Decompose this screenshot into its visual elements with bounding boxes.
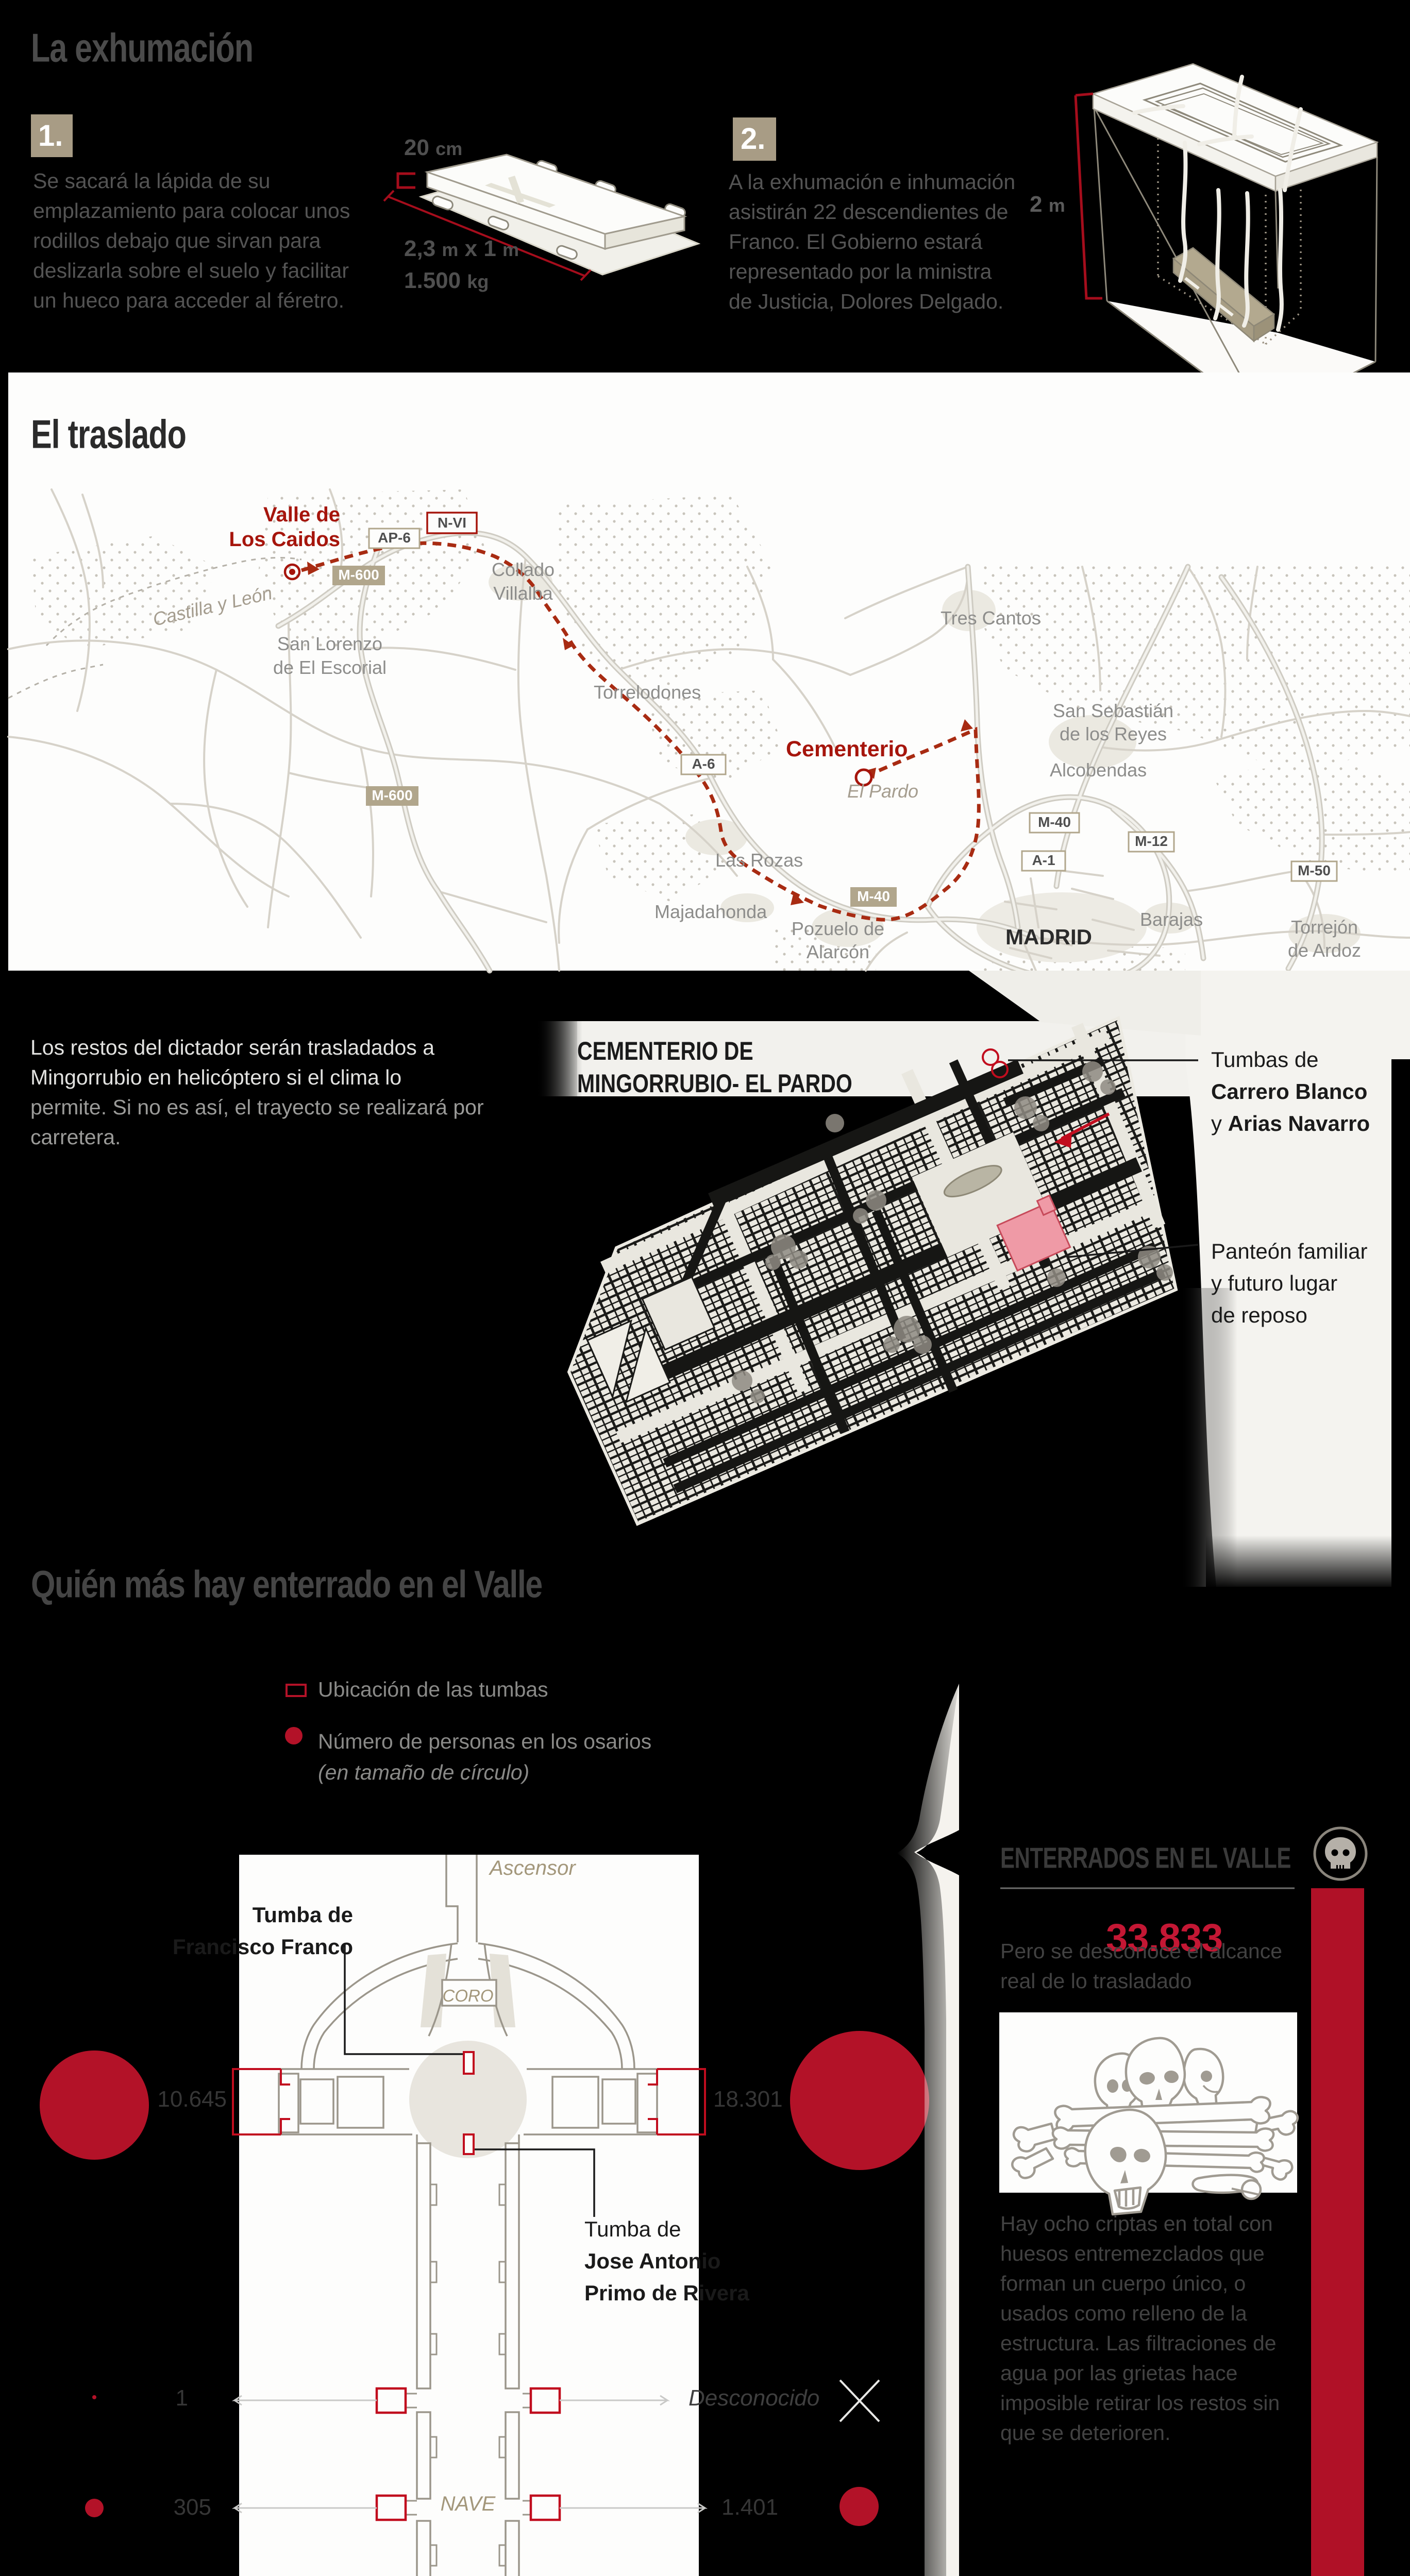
svg-text:M-40: M-40 [1038,814,1071,830]
svg-text:Torrejón: Torrejón [1291,917,1358,938]
svg-text:Alarcón: Alarcón [807,941,869,962]
svg-text:de los Reyes: de los Reyes [1060,723,1167,744]
svg-text:Collado: Collado [492,559,555,580]
svg-text:El Pardo: El Pardo [847,781,918,802]
svg-text:Los Caidos: Los Caidos [229,528,340,551]
svg-text:San Lorenzo: San Lorenzo [277,633,382,654]
svg-text:Torrelodones: Torrelodones [594,682,701,703]
svg-text:Villalba: Villalba [493,583,553,604]
svg-text:de El Escorial: de El Escorial [273,657,387,678]
svg-text:M-40: M-40 [857,888,890,904]
svg-text:A-6: A-6 [692,756,715,772]
svg-text:N-VI: N-VI [438,515,466,531]
svg-text:de Ardoz: de Ardoz [1288,940,1361,961]
svg-text:Pozuelo de: Pozuelo de [792,918,884,939]
svg-text:Valle de: Valle de [263,503,340,526]
svg-text:AP-6: AP-6 [378,530,411,546]
svg-text:MADRID: MADRID [1005,925,1092,949]
svg-text:M-12: M-12 [1135,833,1168,849]
svg-text:Cementerio: Cementerio [786,737,908,761]
svg-text:Tres Cantos: Tres Cantos [941,607,1041,629]
svg-text:M-600: M-600 [338,567,379,583]
svg-text:M-600: M-600 [372,787,412,803]
svg-text:Las Rozas: Las Rozas [715,850,803,871]
svg-text:Barajas: Barajas [1140,909,1203,930]
svg-text:San Sebastián: San Sebastián [1053,700,1173,721]
svg-text:M-50: M-50 [1298,862,1331,878]
svg-text:A-1: A-1 [1032,852,1055,868]
svg-text:Alcobendas: Alcobendas [1050,759,1147,781]
svg-text:Majadahonda: Majadahonda [654,901,767,922]
